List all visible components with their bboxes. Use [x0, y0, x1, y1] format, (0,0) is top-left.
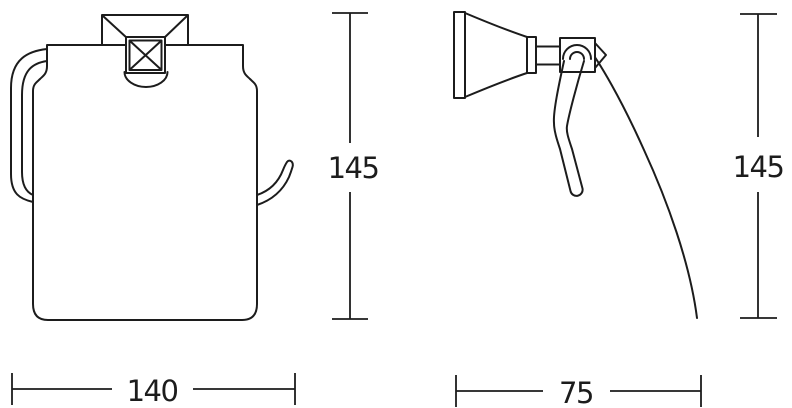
holder-arm	[554, 61, 584, 196]
dimension-side-depth: 75	[456, 375, 701, 408]
dimension-side-height: 145	[733, 14, 784, 318]
dimension-label-front-width: 140	[127, 374, 178, 408]
bell-mount-bottom-curve	[465, 73, 527, 97]
dimension-front-height: 145	[328, 13, 379, 319]
dimension-label-front-height: 145	[328, 151, 379, 185]
dimension-label-side-depth: 75	[559, 376, 593, 408]
side-view-drawing	[454, 12, 697, 318]
spare-hook	[257, 161, 293, 205]
bell-mount-top-curve	[465, 13, 527, 37]
drawing-canvas: 145 140 145 75	[0, 0, 792, 408]
bracket-diagonal-right	[164, 16, 187, 38]
mount-collar	[527, 37, 536, 73]
technical-drawing: 145 140 145 75	[0, 0, 792, 408]
front-view-drawing	[11, 15, 293, 320]
bracket-diagonal-left	[103, 16, 127, 38]
dimension-label-side-height: 145	[733, 150, 784, 184]
dimension-front-width: 140	[12, 373, 295, 408]
cover-profile-curve	[584, 42, 697, 318]
wall-plate	[454, 12, 465, 98]
